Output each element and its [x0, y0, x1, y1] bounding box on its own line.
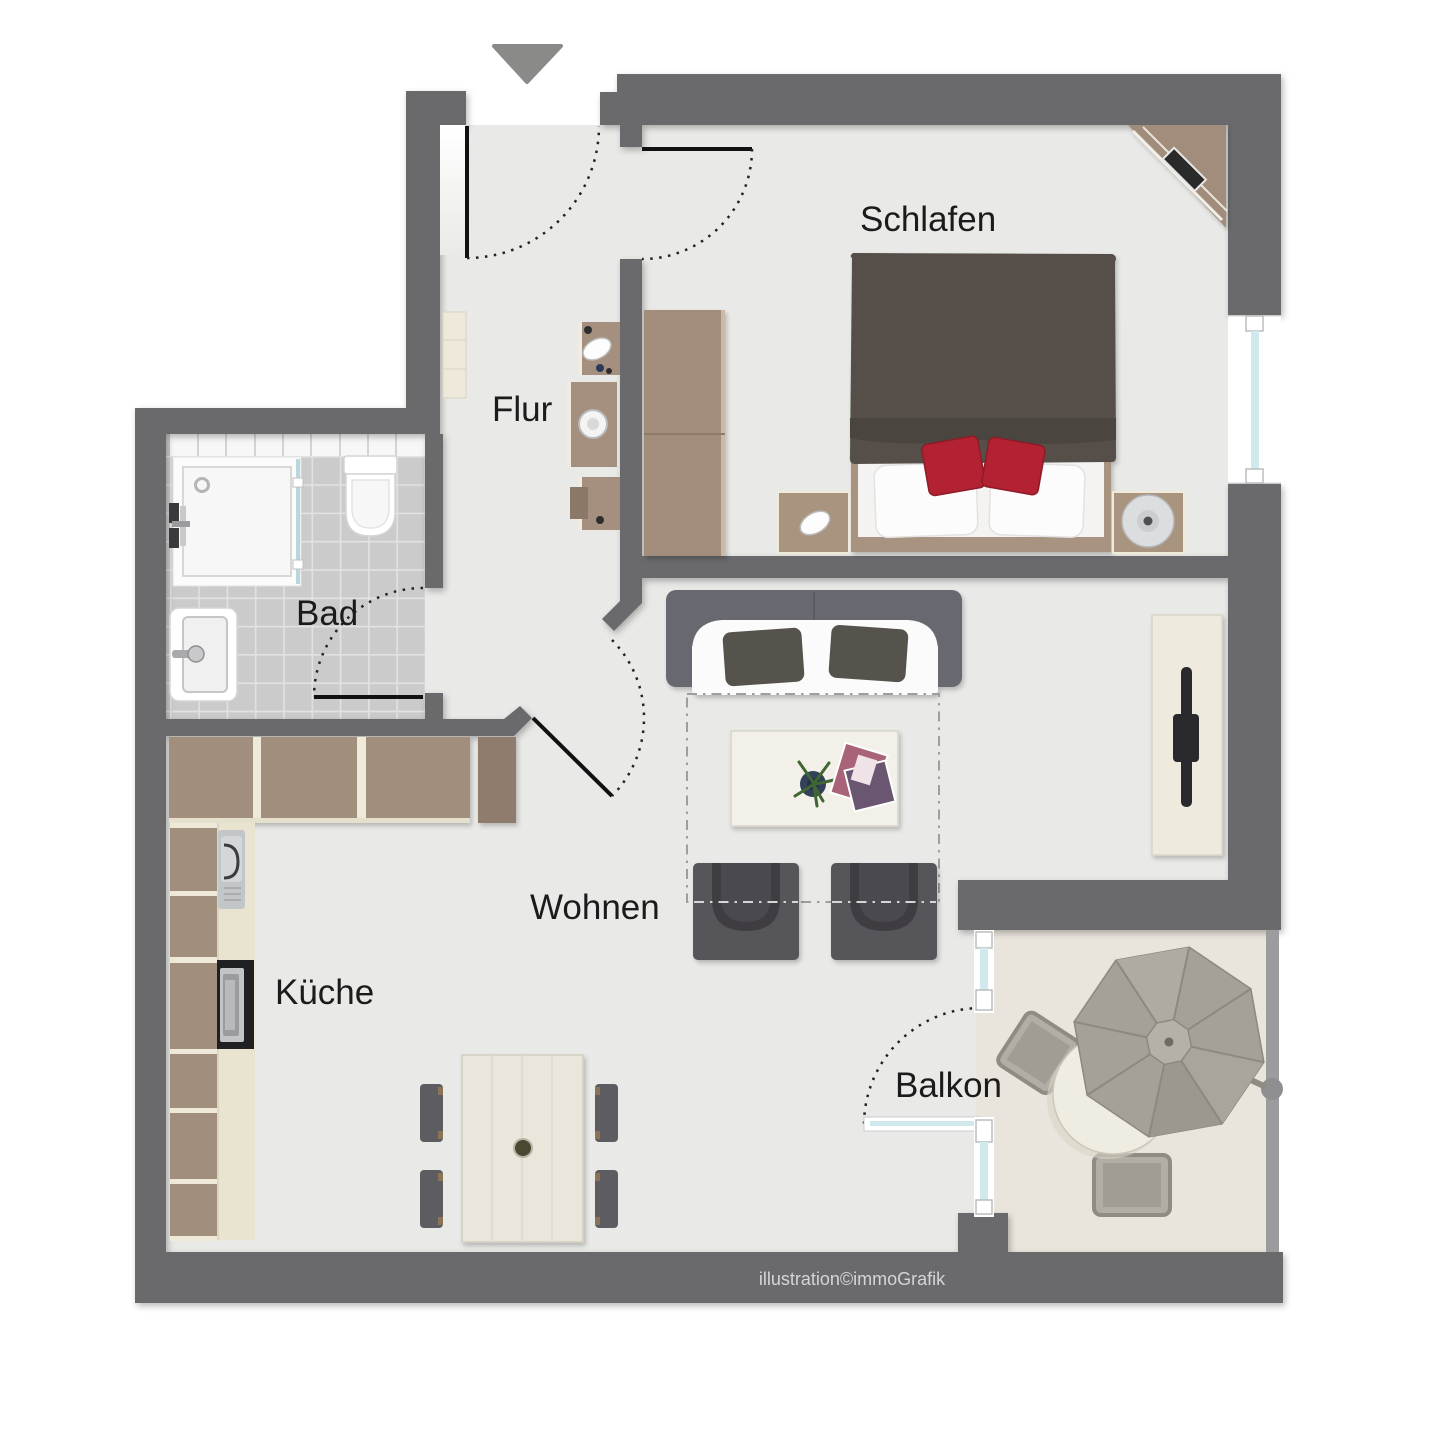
svg-text:illustration©immoGrafik: illustration©immoGrafik — [759, 1269, 946, 1289]
svg-text:Flur: Flur — [492, 390, 553, 429]
svg-text:Wohnen: Wohnen — [530, 888, 660, 927]
svg-text:Schlafen: Schlafen — [860, 200, 996, 239]
svg-text:Balkon: Balkon — [895, 1066, 1002, 1105]
svg-text:Bad: Bad — [296, 594, 358, 633]
svg-text:Küche: Küche — [275, 973, 374, 1012]
